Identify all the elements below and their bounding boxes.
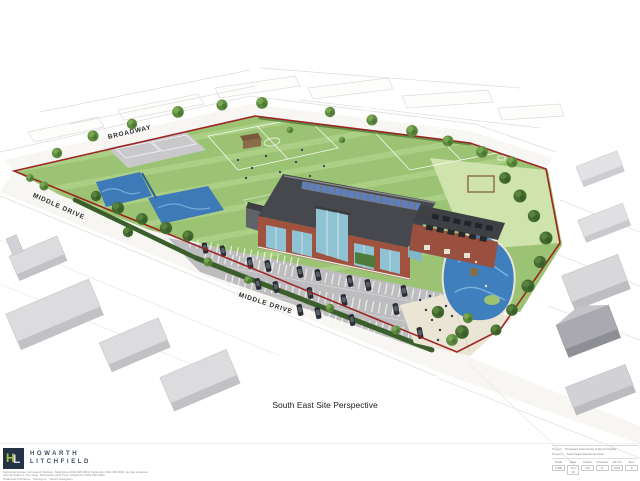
title-block-cell: Drawn DH: [581, 460, 594, 475]
title-block-cell: Job No 2016: [611, 460, 624, 475]
field-label: Date: [567, 460, 580, 464]
architectural-sheet: { "drawing": { "streets": { "broadway": …: [0, 0, 640, 480]
field-value: Jun 16: [567, 465, 580, 475]
context-buildings-right: [553, 151, 636, 416]
field-value: DH: [581, 465, 594, 471]
field-label: Checked: [596, 460, 609, 464]
firm-logo: H L: [3, 448, 24, 469]
logo-letter-l: L: [13, 449, 20, 470]
firm-name: HOWARTH LITCHFIELD: [30, 450, 91, 466]
title-block-cell: Checked JL: [596, 460, 609, 475]
drawing-label: Drawing:: [552, 452, 564, 457]
field-label: Drawn: [581, 460, 594, 464]
title-block-cell: Scale 1:500: [552, 460, 565, 475]
title-block-cell: Date Jun 16: [567, 460, 580, 475]
field-label: Rev: [625, 460, 638, 464]
field-label: Job No: [611, 460, 624, 464]
field-value: JL: [596, 465, 609, 471]
sheet-divider: [0, 443, 640, 444]
drawing-value: South East Site Perspective: [567, 452, 604, 457]
title-block-cell: Rev A: [625, 460, 638, 475]
title-block-fields: Scale 1:500 Date Jun 16 Drawn DH Checked…: [552, 458, 638, 475]
field-label: Scale: [552, 460, 565, 464]
field-value: A: [625, 465, 638, 471]
firm-name-line2: LITCHFIELD: [30, 458, 91, 466]
field-value: 1:500: [552, 465, 565, 471]
field-value: 2016: [611, 465, 624, 471]
firm-name-line1: HOWARTH: [30, 450, 91, 458]
drawing-caption: South East Site Perspective: [0, 400, 640, 410]
title-block: Project: Proposed Community & Sports Fac…: [552, 445, 638, 475]
